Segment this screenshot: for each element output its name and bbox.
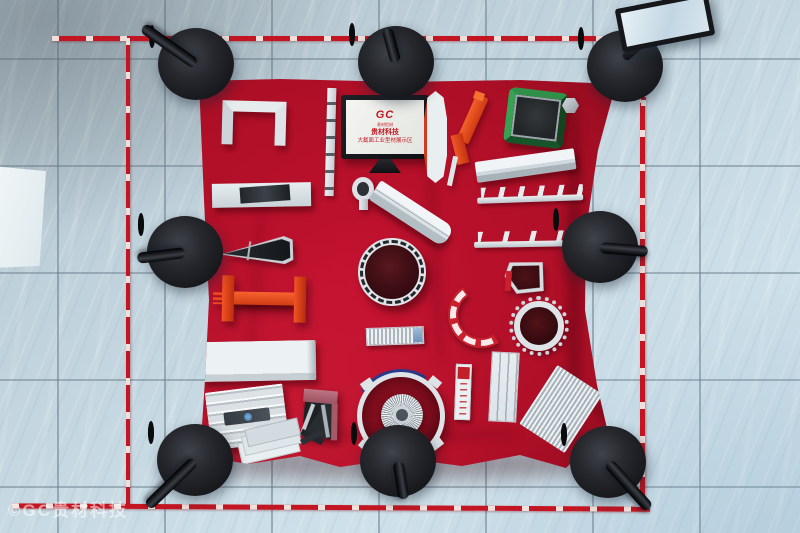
sign-subtitle: 大截面工业型材展示区 — [357, 138, 412, 144]
ring-slots — [360, 240, 424, 304]
trapezoid-side — [331, 403, 338, 440]
ibeam-web — [233, 291, 295, 305]
caution-tape-left — [126, 38, 130, 508]
exhibition-photo: GC 贵材铝材 贵材科技 大截面工业型材展示区 — [0, 0, 800, 533]
red-arc-profile — [448, 282, 514, 348]
channel-panel-profile — [488, 351, 520, 422]
clamp-part — [239, 184, 290, 203]
white-rail — [447, 156, 458, 186]
sign-stand — [369, 159, 401, 173]
white-wall-panel — [0, 166, 46, 268]
airfoil-profile — [221, 236, 294, 266]
sign-board: GC 贵材铝材 贵材科技 大截面工业型材展示区 — [341, 95, 429, 159]
label-strip — [454, 364, 472, 421]
label-text-lines — [459, 383, 467, 415]
red-label — [457, 367, 469, 379]
green-frame-profile — [503, 87, 569, 150]
u-channel-profile — [221, 100, 286, 146]
vertical-rail-profile — [325, 88, 337, 196]
large-ring-profile — [358, 238, 426, 306]
mini-heatsink-profile — [366, 326, 425, 346]
sign-brand: 贵材铝材 — [377, 123, 393, 127]
red-ibeam-profile — [222, 275, 307, 322]
caution-tape-top — [52, 36, 644, 41]
x-bracket — [298, 426, 326, 448]
base-plate-with-clamp — [212, 182, 311, 208]
watermark: ©GC贵材科技 — [8, 496, 128, 521]
long-panel-profile — [202, 340, 317, 382]
gear-ring-profile — [514, 301, 564, 351]
ibeam-flange — [294, 277, 307, 323]
arc-dashes — [444, 278, 518, 352]
ibeam-flange — [222, 275, 235, 321]
sign-logo: GC — [376, 110, 395, 121]
blade-profile — [368, 180, 454, 247]
tube-foot — [359, 199, 368, 210]
blue-label — [413, 328, 422, 342]
heatsink-hub — [393, 406, 411, 424]
sign-screen: GC 贵材铝材 贵材科技 大截面工业型材展示区 — [346, 100, 424, 154]
ibeam-tines — [213, 292, 222, 304]
sign-title: 贵材科技 — [371, 129, 399, 137]
